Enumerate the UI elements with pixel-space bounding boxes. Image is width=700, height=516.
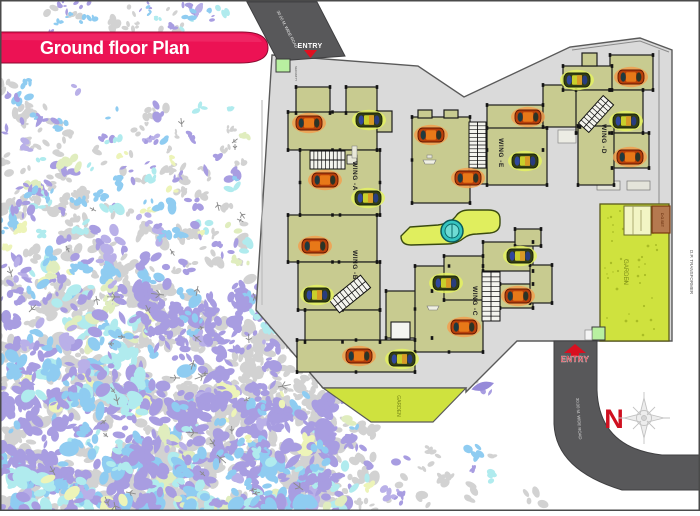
svg-text:WING -B: WING -B	[351, 250, 358, 280]
svg-text:N: N	[604, 404, 624, 434]
svg-text:GARDEN: GARDEN	[622, 259, 628, 285]
svg-text:ENTRY: ENTRY	[561, 355, 590, 364]
svg-text:GARDEN: GARDEN	[395, 395, 401, 417]
svg-text:ENTRY: ENTRY	[298, 43, 323, 50]
svg-text:SECURITY: SECURITY	[294, 66, 298, 81]
svg-text:Ground floor Plan: Ground floor Plan	[40, 38, 190, 58]
svg-text:WING -C: WING -C	[471, 286, 478, 316]
svg-text:WING -D: WING -D	[600, 124, 607, 154]
svg-text:WING -A: WING -A	[351, 161, 358, 191]
svg-text:D.P. TRANSFORMER: D.P. TRANSFORMER	[689, 250, 694, 295]
svg-text:D.G.SET: D.G.SET	[660, 213, 664, 228]
svg-text:WING -E: WING -E	[497, 138, 504, 168]
